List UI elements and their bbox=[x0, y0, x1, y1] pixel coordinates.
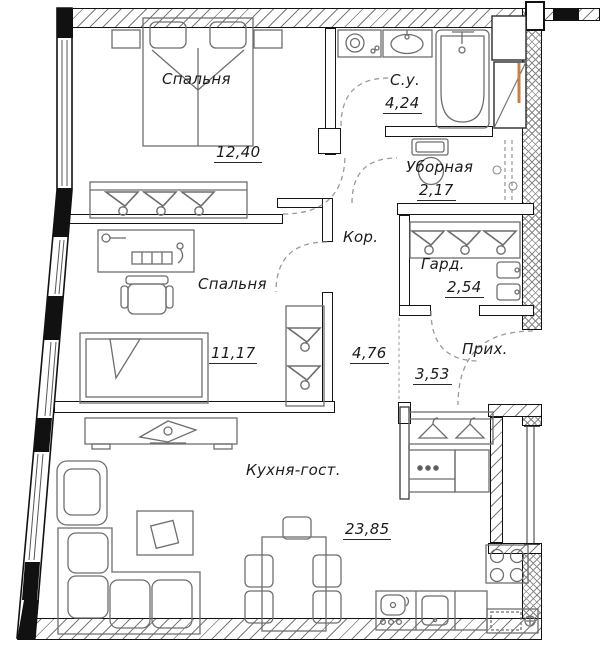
room-label-bedroom-2: Спальня bbox=[198, 277, 267, 293]
room-area-wardrobe-room: 2,54 bbox=[445, 280, 484, 298]
washbasin-icon bbox=[383, 30, 432, 57]
room-area-bathroom: 4,24 bbox=[383, 96, 422, 114]
door-arc-toilet bbox=[352, 158, 397, 203]
room-area-kitchen-living: 23,85 bbox=[343, 522, 391, 540]
wall-bedroom2-east-b bbox=[322, 292, 333, 404]
room-label-wardrobe-room: Гард. bbox=[421, 257, 465, 273]
room-label-toilet: Уборная bbox=[406, 160, 473, 176]
nightstand-icon bbox=[112, 30, 140, 48]
armchair-icon bbox=[57, 461, 107, 525]
room-label-hallway: Прих. bbox=[462, 342, 508, 358]
wall-bottom bbox=[28, 618, 542, 640]
wall-gard-bottom-l bbox=[399, 305, 431, 316]
area-value: 4,24 bbox=[383, 96, 422, 114]
area-value: 4,76 bbox=[350, 346, 389, 364]
room-label-bathroom: С.у. bbox=[390, 73, 420, 89]
room-area-bedroom-2: 11,17 bbox=[209, 346, 257, 364]
window-pier bbox=[22, 562, 40, 600]
room-area-toilet: 2,17 bbox=[417, 183, 456, 201]
wall-toilet-bottom bbox=[397, 203, 534, 215]
coffee-table-icon bbox=[137, 511, 193, 555]
wall-bedroom2-east-a bbox=[322, 198, 333, 242]
room-label-kitchen-living: Кухня-гост. bbox=[246, 463, 341, 479]
dining-chair-icon bbox=[313, 555, 341, 587]
desk-icon bbox=[98, 230, 194, 272]
dining-table-icon bbox=[245, 517, 341, 631]
area-value: 23,85 bbox=[343, 522, 391, 540]
shoe-cabinet-icon bbox=[409, 450, 489, 492]
area-value: 3,53 bbox=[413, 367, 452, 385]
wall-bathroom-bottom bbox=[385, 126, 493, 137]
duct-zone bbox=[493, 140, 517, 202]
pier-top-right bbox=[553, 8, 579, 21]
single-bed-icon bbox=[80, 333, 208, 403]
coat-rack-icon bbox=[400, 407, 493, 499]
room-area-hallway: 3,53 bbox=[413, 367, 452, 385]
area-value: 11,17 bbox=[209, 346, 257, 364]
wall-niche-left bbox=[490, 417, 503, 543]
dining-chair-icon bbox=[283, 517, 311, 539]
window-pier bbox=[34, 418, 52, 452]
wall-jamb-bathroom bbox=[318, 128, 341, 154]
area-value: 2,17 bbox=[417, 183, 456, 201]
wall-kitchen-divider bbox=[54, 401, 335, 413]
floor-plan: Спальня 12,40 С.у. 4,24 Уборная 2,17 Кор… bbox=[0, 0, 600, 646]
vent-shaft-icon bbox=[492, 16, 526, 128]
wall-gard-bottom-r bbox=[479, 305, 534, 316]
office-chair-icon bbox=[121, 276, 173, 314]
wardrobe-bedroom1 bbox=[90, 182, 247, 218]
wall-top bbox=[57, 8, 527, 28]
room-label-bedroom-1: Спальня bbox=[162, 72, 231, 88]
nightstand-icon bbox=[254, 30, 282, 48]
room-area-corridor: 4,76 bbox=[350, 346, 389, 364]
washing-machine-icon bbox=[338, 30, 381, 57]
window-right bbox=[524, 426, 540, 544]
door-arc-bedroom2 bbox=[276, 242, 327, 292]
wall-hall-stub bbox=[398, 402, 411, 424]
area-value: 2,54 bbox=[445, 280, 484, 298]
dining-chair-icon bbox=[245, 555, 273, 587]
area-value: 12,40 bbox=[214, 145, 262, 163]
wall-bedroom1-bottom bbox=[60, 214, 283, 224]
wall-niche-bottom bbox=[488, 543, 542, 554]
door-arc-bathroom bbox=[341, 78, 389, 126]
wardrobe-gard bbox=[410, 222, 520, 258]
wall-gard-left bbox=[399, 215, 410, 315]
window-glazing bbox=[29, 40, 67, 560]
room-label-corridor: Кор. bbox=[343, 230, 378, 246]
window-pier bbox=[44, 296, 63, 340]
wall-left-slanted bbox=[17, 8, 73, 640]
bathtub-icon bbox=[436, 30, 489, 128]
room-area-bedroom-1: 12,40 bbox=[214, 145, 262, 163]
closet-icon bbox=[286, 306, 324, 406]
window-pier bbox=[53, 188, 72, 237]
wall-niche-top bbox=[488, 404, 542, 417]
shelf-box-icon bbox=[497, 262, 520, 300]
tv-stand-icon bbox=[85, 418, 237, 449]
wall-right-upper bbox=[522, 8, 542, 330]
